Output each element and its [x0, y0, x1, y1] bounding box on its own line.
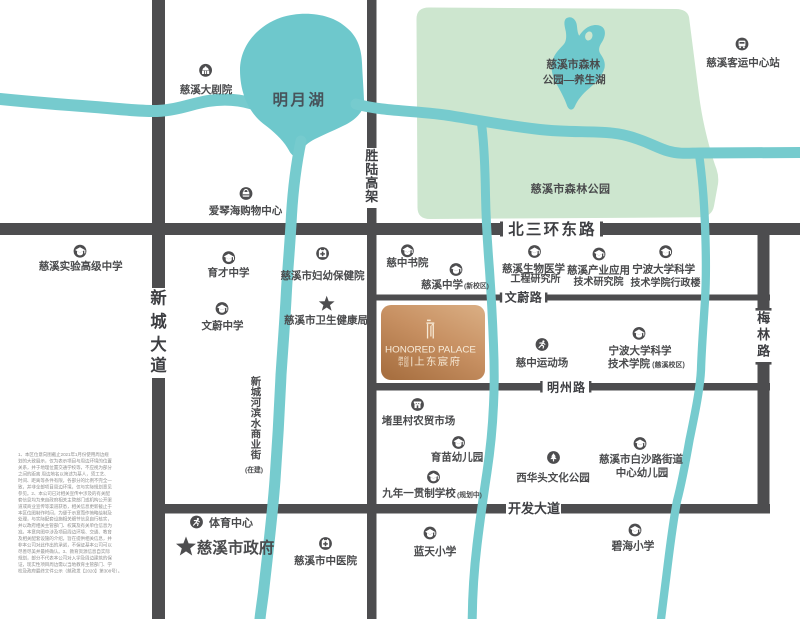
svg-text:北三环东路: 北三环东路: [508, 220, 597, 239]
svg-text:宁波大学科学: 宁波大学科学: [609, 344, 672, 357]
svg-text:慈溪市白沙路街道: 慈溪市白沙路街道: [599, 453, 683, 466]
svg-text:规划，部分不代表本公司对入学及周边建筑的保: 规划，部分不代表本公司对入学及周边建筑的保: [18, 554, 112, 561]
svg-text:准。本意向图中涉及项目周边环境、交通、教育: 准。本意向图中涉及项目周边环境、交通、教育: [18, 529, 112, 536]
svg-text:1、本区位意向图截止2021年1月份使用周边规: 1、本区位意向图截止2021年1月份使用周边规: [18, 451, 109, 458]
svg-text:道或商业宣传等渠道获悉，相关信息更新截止于: 道或商业宣传等渠道获悉，相关信息更新截止于: [18, 503, 112, 510]
svg-text:明月湖: 明月湖: [272, 91, 326, 109]
svg-text:滨: 滨: [251, 407, 262, 420]
svg-text:技术学院: 技术学院: [608, 357, 650, 370]
svg-text:慈溪市卫生健康局: 慈溪市卫生健康局: [284, 313, 368, 326]
svg-text:(在建): (在建): [245, 465, 263, 474]
svg-text:架: 架: [364, 189, 378, 204]
svg-text:明州路: 明州路: [547, 379, 586, 394]
svg-text:慈溪市森林: 慈溪市森林: [546, 57, 600, 71]
svg-text:大: 大: [150, 335, 167, 354]
svg-text:融创: 融创: [398, 356, 409, 363]
svg-text:技术研究院: 技术研究院: [574, 275, 624, 288]
svg-text:(新校区): (新校区): [464, 281, 489, 290]
svg-text:育才中学: 育才中学: [208, 266, 250, 279]
svg-text:关系，并于地理位置交通学校等，不应视为部分: 关系，并于地理位置交通学校等，不应视为部分: [18, 464, 112, 471]
svg-text:慈溪市妇幼保健院: 慈溪市妇幼保健院: [281, 269, 365, 282]
svg-text:公园—养生湖: 公园—养生湖: [543, 73, 606, 86]
svg-text:路: 路: [757, 344, 771, 359]
svg-text:中心幼儿园: 中心幼儿园: [616, 466, 669, 479]
svg-text:及相关配套设施的介绍，旨在提供相关信息，并: 及相关配套设施的介绍，旨在提供相关信息，并: [18, 535, 112, 542]
svg-text:商: 商: [251, 428, 261, 441]
svg-text:文蔚路: 文蔚路: [505, 289, 543, 304]
svg-text:处理，与实际配套设施相关细节信息自行核实，: 处理，与实际配套设施相关细节信息自行核实，: [18, 516, 112, 523]
svg-text:上东宸府: 上东宸府: [414, 355, 461, 368]
svg-text:宁波大学科学: 宁波大学科学: [632, 262, 695, 275]
svg-text:慈中书院: 慈中书院: [386, 256, 428, 269]
svg-text:慈溪产业应用: 慈溪产业应用: [567, 264, 630, 277]
svg-text:九年一贯制学校: 九年一贯制学校: [381, 486, 456, 499]
svg-text:技术学院行政楼: 技术学院行政楼: [631, 276, 701, 289]
svg-text:慈溪中学: 慈溪中学: [421, 278, 463, 291]
svg-text:道: 道: [150, 356, 167, 375]
svg-text:之间的距离 周边地名以简述为基人，须工艺、: 之间的距离 周边地名以简述为基人，须工艺、: [18, 471, 109, 478]
svg-text:河: 河: [251, 397, 262, 409]
svg-text:慈中运动场: 慈中运动场: [516, 356, 569, 369]
svg-text:育苗幼儿园: 育苗幼儿园: [431, 450, 484, 463]
svg-text:HONORED PALACE: HONORED PALACE: [385, 344, 476, 355]
svg-text:(慈溪校区): (慈溪校区): [652, 360, 685, 369]
svg-text:蓝天小学: 蓝天小学: [414, 545, 457, 558]
svg-text:慈溪市森林公园: 慈溪市森林公园: [531, 182, 611, 196]
svg-text:慈溪市政府: 慈溪市政府: [197, 538, 275, 557]
svg-text:(规划中): (规划中): [457, 490, 482, 499]
svg-text:新: 新: [150, 289, 166, 308]
svg-text:时间、距离等条件有限，各部分的比例不完全一: 时间、距离等条件有限，各部分的比例不完全一: [18, 477, 112, 484]
svg-text:工程研究所: 工程研究所: [511, 272, 561, 285]
svg-text:慈溪客运中心站: 慈溪客运中心站: [706, 56, 780, 69]
svg-text:林: 林: [757, 327, 770, 342]
svg-text:梅: 梅: [757, 311, 770, 326]
svg-text:尽善尽美并最终确认。3、教育资源信息自实际: 尽善尽美并最终确认。3、教育资源信息自实际: [18, 548, 110, 555]
svg-text:文蔚中学: 文蔚中学: [201, 319, 244, 332]
svg-text:慈溪市中医院: 慈溪市中医院: [294, 554, 357, 567]
svg-text:非本公司对此作出的承诺，不保证基本公司可以: 非本公司对此作出的承诺，不保证基本公司可以: [18, 542, 112, 549]
svg-text:业: 业: [251, 438, 262, 451]
svg-text:本区位图制作时间，为便于示意而作简略绘制及: 本区位图制作时间，为便于示意而作简略绘制及: [18, 509, 112, 516]
svg-text:街: 街: [250, 449, 262, 462]
svg-text:证，现实性项目周边需以当地教育主管部门、学: 证，现实性项目周边需以当地教育主管部门、学: [18, 561, 112, 568]
svg-text:慈溪实验高级中学: 慈溪实验高级中学: [39, 259, 123, 272]
svg-text:陆: 陆: [365, 162, 378, 177]
svg-text:爱琴海购物中心: 爱琴海购物中心: [209, 204, 283, 217]
svg-text:慈溪大剧院: 慈溪大剧院: [180, 83, 233, 96]
svg-text:致，并非全部项目周边环境，仅与实际规划意见: 致，并非全部项目周边环境，仅与实际规划意见: [18, 483, 112, 490]
svg-text:碧海小学: 碧海小学: [611, 540, 655, 553]
svg-text:城: 城: [150, 313, 167, 331]
svg-text:校及政府最终文件公示（慈政发【2020】第308号）。: 校及政府最终文件公示（慈政发【2020】第308号）。: [18, 567, 122, 574]
svg-text:体育中心: 体育中心: [209, 515, 253, 529]
svg-text:胜: 胜: [365, 148, 378, 163]
svg-text:划的大致展示，仅为表示项目与周边环境的位置: 划的大致展示，仅为表示项目与周边环境的位置: [18, 458, 112, 465]
svg-text:开发大道: 开发大道: [508, 501, 560, 516]
svg-text:城: 城: [251, 386, 262, 399]
svg-text:堵里村农贸市场: 堵里村农贸市场: [382, 414, 456, 427]
svg-text:西华头文化公园: 西华头文化公园: [516, 471, 590, 484]
svg-text:中国: 中国: [398, 361, 409, 368]
svg-text:参见。2、本公司已对相关宣传中涉及的有关配: 参见。2、本公司已对相关宣传中涉及的有关配: [18, 490, 110, 497]
svg-text:套信息均为来自政府相关主管部门或机构公开渠: 套信息均为来自政府相关主管部门或机构公开渠: [18, 496, 112, 503]
svg-text:并以政府相关主管部门、权属及有关单位信息为: 并以政府相关主管部门、权属及有关单位信息为: [18, 522, 112, 529]
svg-text:新: 新: [251, 375, 262, 388]
svg-text:水: 水: [251, 417, 262, 430]
